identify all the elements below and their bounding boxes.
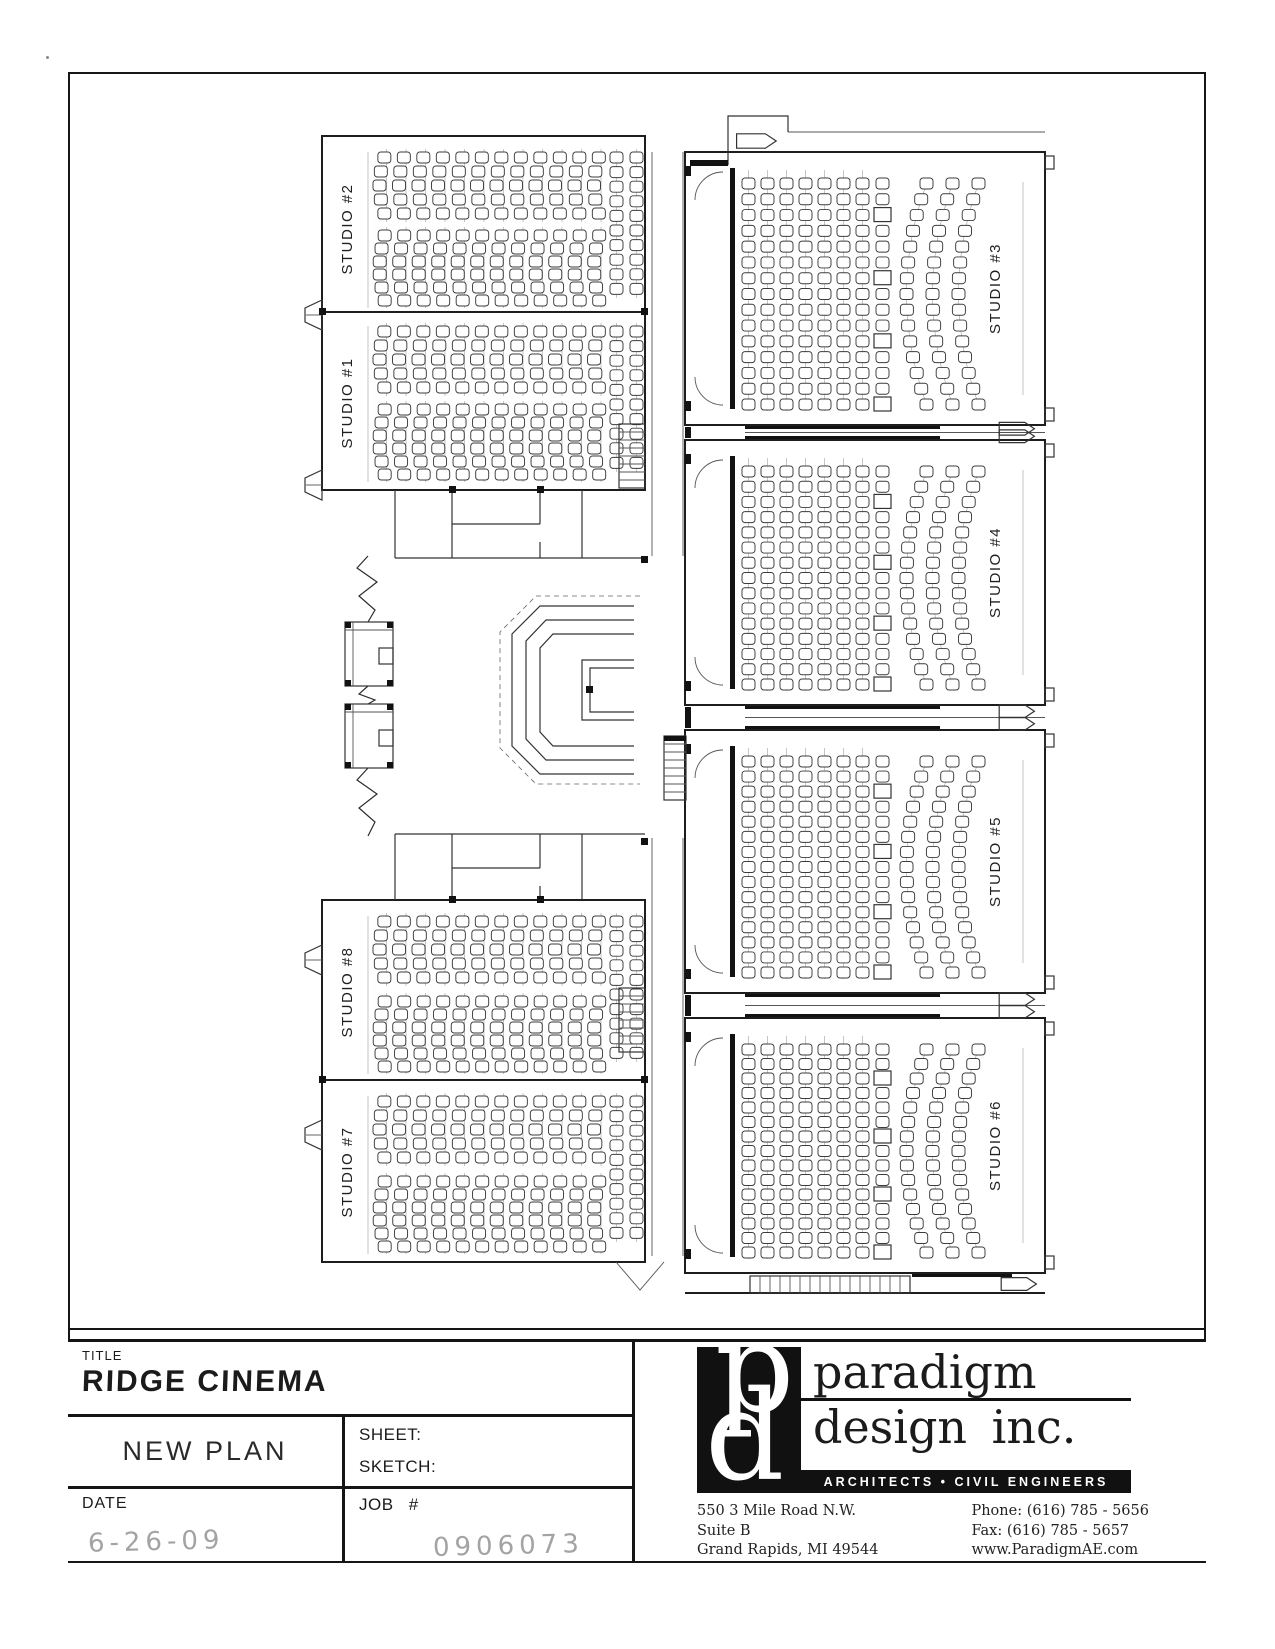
title-cell: TITLE RIDGE CINEMA: [68, 1342, 632, 1417]
address-line2: Suite B: [697, 1522, 878, 1542]
sheet-sketch-cell: SHEET: SKETCH:: [345, 1417, 632, 1486]
job-label: JOB #: [359, 1495, 618, 1515]
address-line1: 550 3 Mile Road N.W.: [697, 1502, 878, 1522]
studio-label: STUDIO #4: [987, 527, 1004, 618]
studio-label: STUDIO #6: [987, 1100, 1004, 1191]
studio-label: STUDIO #8: [339, 946, 356, 1037]
fax-line: Fax: (616) 785 - 5657: [971, 1522, 1149, 1542]
projection-service-rooms: [395, 490, 645, 900]
title-block-left: TITLE RIDGE CINEMA NEW PLAN SHEET: SKETC…: [68, 1342, 635, 1561]
firm-logo: p d paradigm design inc. ARCHITECTS • CI…: [697, 1347, 1206, 1493]
drawing-sheet: STUDIO #2STUDIO #1STUDIO #8STUDIO #7STUD…: [0, 0, 1275, 1649]
floor-plan: STUDIO #2STUDIO #1STUDIO #8STUDIO #7STUD…: [68, 72, 1206, 1326]
sketch-label: SKETCH:: [359, 1457, 618, 1477]
plan-name-cell: NEW PLAN: [68, 1417, 345, 1486]
firm-panel: p d paradigm design inc. ARCHITECTS • CI…: [635, 1342, 1206, 1561]
plan-name: NEW PLAN: [122, 1436, 287, 1467]
studio-label: STUDIO #1: [339, 357, 356, 448]
concession-counter: [500, 596, 640, 784]
plan-sheet-row: NEW PLAN SHEET: SKETCH:: [68, 1417, 632, 1489]
pd-monogram: p d: [697, 1347, 801, 1493]
firm-name-line1: paradigm: [801, 1347, 1131, 1401]
firm-address: 550 3 Mile Road N.W. Suite B Grand Rapid…: [697, 1502, 878, 1561]
firm-name: paradigm design inc. ARCHITECTS • CIVIL …: [801, 1347, 1131, 1493]
studio-label: STUDIO #2: [339, 183, 356, 274]
scan-speck: [46, 56, 49, 59]
date-cell: DATE 6-26-09: [68, 1489, 345, 1561]
date-job-row: DATE 6-26-09 JOB # 0906073: [68, 1489, 632, 1561]
website-line: www.ParadigmAE.com: [971, 1541, 1149, 1561]
generated-plan-detail: STUDIO #2STUDIO #1STUDIO #8STUDIO #7STUD…: [305, 116, 1054, 1293]
date-label: DATE: [82, 1495, 328, 1513]
studio-label: STUDIO #7: [339, 1126, 356, 1217]
firm-phone-block: Phone: (616) 785 - 5656 Fax: (616) 785 -…: [971, 1502, 1149, 1561]
date-value-handwritten: 6-26-09: [88, 1525, 225, 1559]
studio-label: STUDIO #5: [987, 816, 1004, 907]
firm-name-line2: design inc.: [801, 1401, 1131, 1470]
title-label: TITLE: [82, 1348, 618, 1363]
address-line3: Grand Rapids, MI 49544: [697, 1541, 878, 1561]
studio-label: STUDIO #3: [987, 243, 1004, 334]
job-number-handwritten: 0906073: [433, 1529, 585, 1563]
project-title: RIDGE CINEMA: [81, 1365, 618, 1399]
monogram-letter-d: d: [705, 1375, 784, 1493]
phone-line: Phone: (616) 785 - 5656: [971, 1502, 1149, 1522]
title-block: TITLE RIDGE CINEMA NEW PLAN SHEET: SKETC…: [68, 1339, 1206, 1561]
sheet-label: SHEET:: [359, 1425, 618, 1445]
firm-tagline: ARCHITECTS • CIVIL ENGINEERS: [801, 1470, 1131, 1493]
job-cell: JOB # 0906073: [345, 1489, 632, 1561]
firm-contact: 550 3 Mile Road N.W. Suite B Grand Rapid…: [697, 1502, 1149, 1561]
